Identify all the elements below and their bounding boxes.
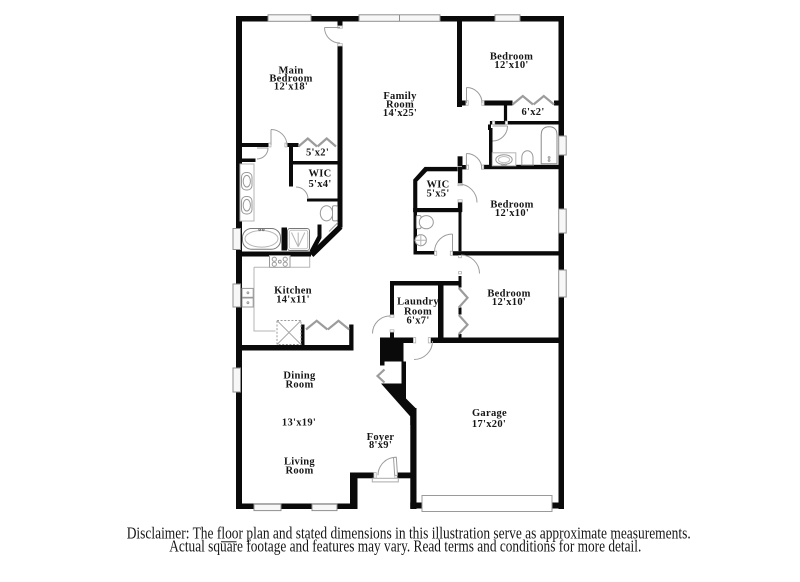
svg-text:Garage: Garage: [472, 408, 507, 419]
svg-text:8'x9': 8'x9': [369, 440, 392, 451]
svg-text:14'x25': 14'x25': [383, 108, 417, 119]
svg-text:12'x10': 12'x10': [495, 208, 529, 219]
svg-text:5'x2': 5'x2': [306, 148, 329, 159]
svg-text:Room: Room: [285, 380, 313, 391]
svg-text:6'x7': 6'x7': [406, 316, 429, 327]
svg-text:13'x19': 13'x19': [282, 417, 316, 428]
svg-text:12'x18': 12'x18': [274, 82, 308, 93]
svg-text:12'x10': 12'x10': [492, 297, 526, 308]
svg-text:5'x4': 5'x4': [308, 179, 331, 190]
svg-text:Room: Room: [285, 465, 313, 476]
svg-text:17'x20': 17'x20': [472, 419, 506, 430]
svg-text:6'x2': 6'x2': [521, 107, 544, 118]
svg-text:12'x10': 12'x10': [494, 60, 528, 71]
svg-text:14'x11': 14'x11': [276, 295, 310, 306]
svg-text:5'x5': 5'x5': [426, 189, 449, 200]
svg-text:Actual square footage and feat: Actual square footage and features may v…: [169, 536, 641, 555]
svg-text:WIC: WIC: [308, 169, 331, 180]
